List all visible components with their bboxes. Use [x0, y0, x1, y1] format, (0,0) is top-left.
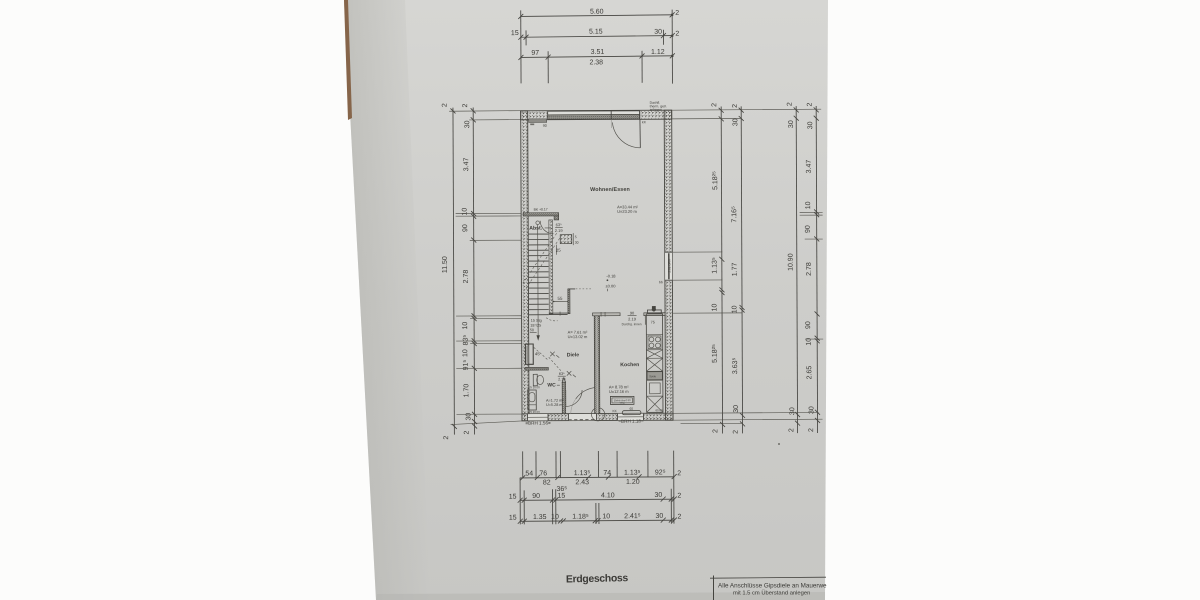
svg-text:2: 2: [712, 429, 719, 433]
svg-text:anlegen: anlegen: [650, 108, 662, 112]
svg-text:30: 30: [464, 120, 471, 128]
svg-text:1.70: 1.70: [463, 384, 470, 398]
svg-text:1.35: 1.35: [533, 514, 547, 521]
svg-text:30: 30: [733, 405, 740, 413]
svg-text:2.41⁵: 2.41⁵: [624, 513, 641, 520]
svg-text:15: 15: [511, 30, 519, 37]
svg-text:5.60: 5.60: [590, 9, 604, 16]
svg-text:54: 54: [525, 470, 533, 477]
svg-text:90: 90: [543, 124, 547, 128]
svg-text:Diele: Diele: [567, 352, 580, 358]
svg-text:30: 30: [807, 121, 814, 129]
svg-text:30: 30: [654, 29, 662, 36]
svg-text:KS 20.00: KS 20.00: [528, 385, 540, 389]
svg-text:10: 10: [551, 514, 559, 521]
svg-text:2: 2: [807, 103, 814, 107]
svg-text:10: 10: [602, 513, 610, 520]
svg-text:2: 2: [464, 431, 471, 435]
svg-text:±0.00: ±0.00: [605, 283, 616, 288]
svg-text:2: 2: [677, 514, 681, 521]
svg-text:Alle Anschlüsse Gipsdiele an M: Alle Anschlüsse Gipsdiele an Mauerwe: [718, 583, 827, 590]
svg-text:60: 60: [629, 407, 633, 411]
svg-text:3.51: 3.51: [591, 49, 605, 56]
svg-text:2: 2: [677, 470, 681, 477]
svg-text:63⁵: 63⁵: [556, 222, 562, 227]
svg-text:10: 10: [462, 349, 469, 357]
svg-text:-0.18: -0.18: [606, 273, 616, 278]
svg-text:5: 5: [575, 235, 577, 239]
svg-text:2: 2: [733, 430, 740, 434]
svg-text:2: 2: [462, 104, 469, 108]
svg-text:2: 2: [787, 102, 794, 106]
svg-text:15: 15: [509, 515, 517, 522]
svg-text:75: 75: [651, 320, 655, 324]
svg-text:30: 30: [788, 120, 795, 128]
svg-text:82: 82: [543, 480, 551, 487]
svg-text:10.90: 10.90: [788, 253, 795, 271]
svg-text:97: 97: [531, 50, 539, 57]
svg-text:30: 30: [575, 241, 579, 245]
svg-text:2: 2: [675, 31, 679, 38]
svg-text:2: 2: [675, 10, 679, 17]
svg-text:74: 74: [603, 470, 611, 477]
svg-text:KS 20.00: KS 20.00: [528, 410, 540, 414]
svg-text:1.13⁵: 1.13⁵: [624, 470, 641, 477]
svg-text:U=5.28 m: U=5.28 m: [546, 403, 563, 407]
svg-text:2.78: 2.78: [463, 270, 470, 284]
svg-text:55: 55: [557, 296, 562, 301]
svg-text:5.18²⁵: 5.18²⁵: [712, 171, 719, 190]
svg-text:2: 2: [788, 428, 795, 432]
svg-text:1.20: 1.20: [626, 479, 640, 486]
svg-text:2: 2: [442, 103, 449, 107]
svg-text:92⁵: 92⁵: [655, 469, 666, 476]
svg-text:3.47: 3.47: [806, 160, 813, 174]
svg-text:Wohnen/Essen: Wohnen/Essen: [590, 187, 630, 193]
svg-text:15: 15: [557, 493, 565, 500]
svg-text:30: 30: [465, 413, 472, 421]
svg-text:10: 10: [462, 208, 469, 216]
svg-text:90: 90: [805, 321, 812, 329]
svg-text:4.10: 4.10: [601, 492, 615, 499]
svg-text:90: 90: [630, 310, 635, 315]
svg-text:25: 25: [556, 248, 561, 253]
svg-text:≡BRH 1.56≡: ≡BRH 1.56≡: [525, 421, 551, 426]
svg-text:2.38: 2.38: [589, 59, 603, 66]
svg-text:60kg: 60kg: [620, 402, 626, 404]
svg-text:30: 30: [655, 513, 663, 520]
svg-text:2.78: 2.78: [806, 262, 813, 276]
svg-text:18⁷/25: 18⁷/25: [530, 324, 541, 328]
svg-text:Spüle: Spüle: [649, 374, 656, 378]
svg-text:mit 1.5 cm Überstand anlegen: mit 1.5 cm Überstand anlegen: [733, 590, 810, 597]
svg-text:3.63⁵: 3.63⁵: [732, 357, 739, 374]
svg-text:U=12.16 m: U=12.16 m: [609, 389, 629, 394]
svg-text:83⁵: 83⁵: [463, 335, 470, 346]
svg-text:76: 76: [539, 470, 547, 477]
svg-text:2.19: 2.19: [558, 377, 565, 381]
svg-text:WC: WC: [547, 382, 556, 388]
svg-text:1.13⁵: 1.13⁵: [712, 257, 719, 274]
svg-text:30: 30: [732, 118, 739, 126]
svg-text:11.50: 11.50: [442, 256, 449, 273]
svg-text:2.19: 2.19: [555, 228, 564, 233]
svg-text:BK +0.17: BK +0.17: [534, 208, 548, 212]
svg-text:45: 45: [535, 351, 540, 356]
svg-text:10: 10: [732, 305, 739, 313]
svg-text:2.43: 2.43: [575, 479, 589, 486]
svg-text:2: 2: [808, 428, 815, 432]
svg-text:30: 30: [654, 492, 662, 499]
svg-text:15: 15: [509, 494, 517, 501]
svg-text:Kochen: Kochen: [620, 362, 639, 368]
svg-text:90: 90: [805, 225, 812, 233]
svg-text:U=13.02 m: U=13.02 m: [568, 334, 588, 339]
svg-text:Abst.: Abst.: [529, 226, 543, 232]
svg-text:63⁵: 63⁵: [559, 372, 565, 376]
svg-text:7.16⁵: 7.16⁵: [731, 206, 738, 223]
svg-text:60 60: 60 60: [655, 408, 662, 412]
svg-text:66: 66: [659, 280, 663, 284]
svg-text:Erdgeschoss: Erdgeschoss: [566, 573, 629, 585]
svg-text:1.77: 1.77: [732, 262, 739, 276]
svg-text:1.18⁵: 1.18⁵: [572, 514, 589, 521]
svg-text:2.01 BRH: 2.01 BRH: [667, 258, 671, 273]
svg-text:50: 50: [530, 328, 534, 332]
svg-text:30: 30: [789, 407, 796, 415]
svg-text:90: 90: [532, 493, 540, 500]
svg-text:U=23.20 m: U=23.20 m: [617, 209, 637, 214]
svg-text:2.19: 2.19: [628, 316, 637, 321]
svg-text:1.12: 1.12: [651, 49, 665, 56]
svg-text:2: 2: [677, 493, 681, 500]
svg-text:Durchg. innen: Durchg. innen: [622, 322, 642, 326]
svg-text:2: 2: [732, 104, 739, 108]
svg-text:2: 2: [443, 436, 450, 440]
svg-text:15 Stg: 15 Stg: [531, 319, 542, 323]
svg-text:5.18²⁵: 5.18²⁵: [712, 344, 719, 363]
svg-text:10: 10: [805, 201, 812, 209]
svg-text:10: 10: [712, 303, 719, 311]
svg-text:2: 2: [711, 103, 718, 107]
svg-text:1.13⁵: 1.13⁵: [574, 470, 591, 477]
svg-text:3.47: 3.47: [463, 157, 470, 171]
svg-text:2.65: 2.65: [806, 366, 813, 380]
svg-text:90: 90: [462, 224, 469, 232]
svg-text:10: 10: [462, 322, 469, 330]
svg-text:91⁵: 91⁵: [463, 360, 470, 371]
svg-text:5.15: 5.15: [589, 29, 603, 36]
svg-text:−BRH 1.18−: −BRH 1.18−: [618, 419, 644, 424]
